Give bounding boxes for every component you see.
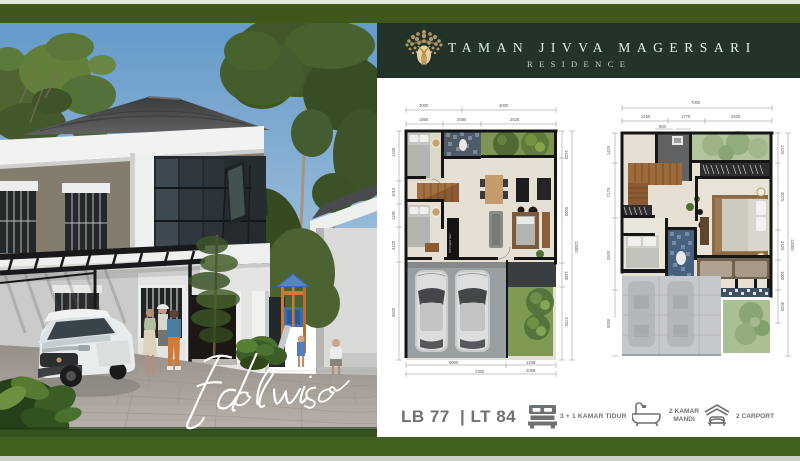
svg-text:2068: 2068	[526, 368, 536, 373]
svg-text:1200: 1200	[564, 271, 569, 281]
svg-text:2625: 2625	[731, 114, 741, 119]
svg-text:5600: 5600	[391, 307, 396, 317]
svg-text:1015: 1015	[391, 187, 396, 197]
svg-text:2150: 2150	[641, 114, 651, 119]
svg-text:3125: 3125	[391, 240, 396, 250]
svg-text:3400: 3400	[606, 250, 611, 260]
svg-text:1235: 1235	[526, 360, 536, 365]
svg-text:5000: 5000	[449, 360, 459, 365]
svg-text:1775: 1775	[681, 114, 691, 119]
svg-text:2625: 2625	[510, 117, 520, 122]
svg-text:2175: 2175	[606, 187, 611, 197]
svg-text:3725: 3725	[564, 317, 569, 327]
svg-text:3625: 3625	[780, 302, 785, 312]
svg-text:7300: 7300	[475, 369, 485, 374]
svg-text:3075: 3075	[780, 192, 785, 202]
svg-text:4000: 4000	[499, 103, 509, 108]
svg-text:KITCHEN SET: KITCHEN SET	[448, 233, 452, 253]
svg-text:1425: 1425	[391, 147, 396, 157]
svg-text:7000: 7000	[691, 100, 701, 105]
svg-text:3000: 3000	[419, 103, 429, 108]
svg-text:2080: 2080	[457, 117, 467, 122]
svg-text:12000: 12000	[790, 239, 795, 251]
svg-text:1425: 1425	[564, 150, 569, 160]
svg-text:2425: 2425	[780, 241, 785, 251]
svg-text:1000: 1000	[780, 271, 785, 281]
svg-text:1865: 1865	[419, 117, 429, 122]
svg-text:5000: 5000	[606, 318, 611, 328]
svg-text:5000: 5000	[564, 207, 569, 217]
svg-text:1425: 1425	[606, 145, 611, 155]
svg-text:1425: 1425	[780, 145, 785, 155]
svg-text:12000: 12000	[574, 241, 579, 253]
svg-text:900: 900	[659, 124, 667, 129]
svg-text:1190: 1190	[391, 210, 396, 220]
